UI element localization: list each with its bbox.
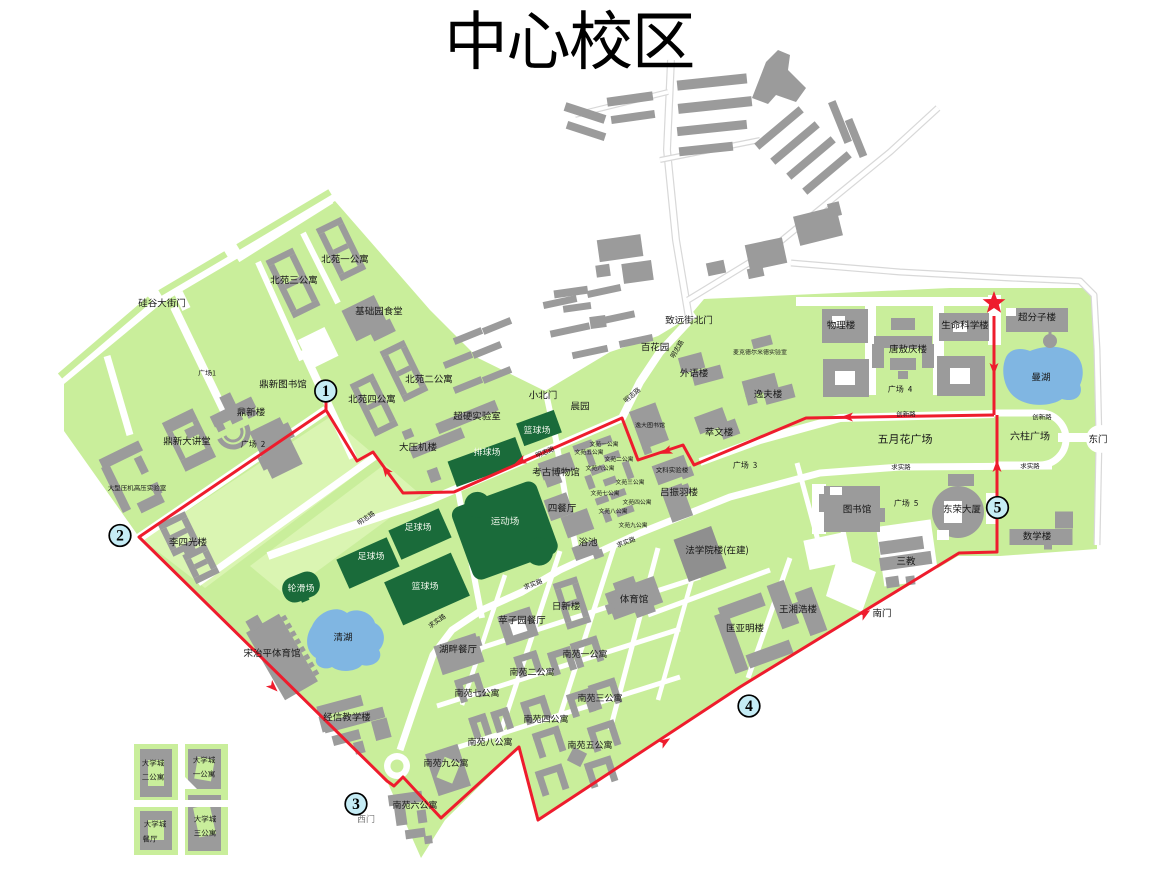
svg-text:2: 2 <box>116 528 124 545</box>
svg-text:4: 4 <box>745 698 753 715</box>
svg-text:3: 3 <box>352 796 360 813</box>
svg-text:5: 5 <box>994 500 1002 517</box>
svg-text:1: 1 <box>322 383 330 400</box>
